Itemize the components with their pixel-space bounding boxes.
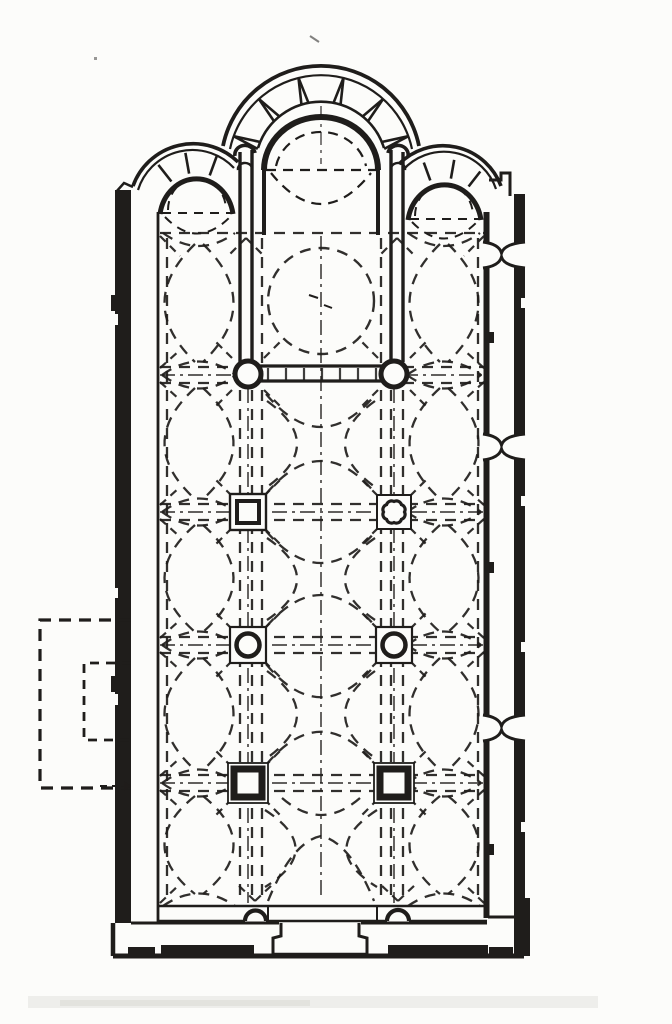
pilaster-strip [111,676,115,692]
e-pier-row2-octofoil-core [383,501,405,523]
east-wall-nub [489,844,494,855]
church-floor-plan [0,0,672,1024]
ne-column-column [381,361,407,387]
w-pier-row4 [234,769,262,797]
wall-opening-gap [481,243,527,267]
w-pier-row2-core [237,501,259,523]
e-column-row3 [383,634,406,657]
e-pier-row4 [380,769,408,797]
wall-hatch [128,947,155,956]
scanned-plan-page [0,0,672,1024]
wall-opening-gap [481,435,527,459]
corner-buttress [525,898,530,956]
wall-opening-gap [481,716,527,740]
w-column-row3 [237,634,260,657]
wall-hatch [161,945,254,954]
pilaster-strip [111,295,115,311]
wall-hatch [388,945,488,954]
east-wall-nub [489,562,494,573]
nw-column-column [235,361,261,387]
wall-hatch [489,947,513,956]
east-wall-nub [489,332,494,343]
